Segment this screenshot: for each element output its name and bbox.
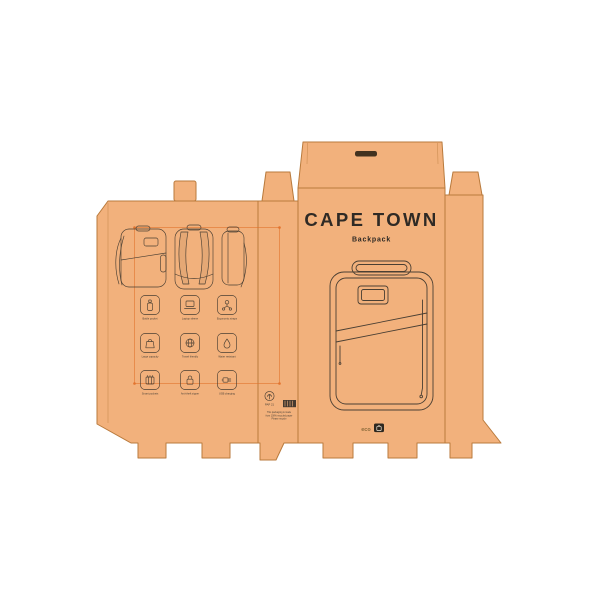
feature-label: Ergonomic straps [217, 317, 238, 321]
front-panel-lid-flap [298, 142, 445, 188]
brand-mark-text: eco [361, 427, 371, 433]
dieline-panels [97, 142, 501, 460]
recycle-note-line2: from 100% recycled paper [266, 414, 293, 417]
back-panel-top-tab [174, 181, 196, 201]
lid-lock-slot [355, 151, 377, 157]
side-panel [258, 201, 298, 460]
print-area-handle-dot [278, 226, 281, 229]
recycle-note-line1: This packaging is made [267, 412, 292, 414]
print-area-handle-dot [133, 226, 136, 229]
feature-label: USB charging [219, 392, 236, 396]
print-area-handle-dot [278, 382, 281, 385]
right-side-panel-top-flap [449, 172, 482, 195]
feature-label: Smart pockets [142, 392, 159, 396]
packaging-dieline-mockup: Bottle pocket Laptop sleeve Ergonomic st… [0, 0, 600, 600]
feature-label: Anti-theft zipper [181, 392, 199, 396]
dieline-artwork: Bottle pocket Laptop sleeve Ergonomic st… [0, 0, 600, 600]
feature-label: Laptop sleeve [182, 317, 199, 321]
feature-label: Bottle pocket [143, 317, 158, 321]
recycle-note-line3: Please recycle [272, 418, 288, 421]
barcode [283, 400, 296, 407]
feature-label: Water resistant [218, 355, 236, 359]
product-subtitle: Backpack [352, 237, 391, 244]
product-title: CAPE TOWN [304, 209, 438, 230]
side-panel-top-flap [262, 172, 294, 201]
right-side-panel [445, 195, 501, 458]
material-code: PAP 21 [265, 403, 275, 407]
feature-label: Travel friendly [182, 355, 199, 359]
feature-label: Large capacity [142, 355, 160, 359]
print-area-handle-dot [133, 382, 136, 385]
